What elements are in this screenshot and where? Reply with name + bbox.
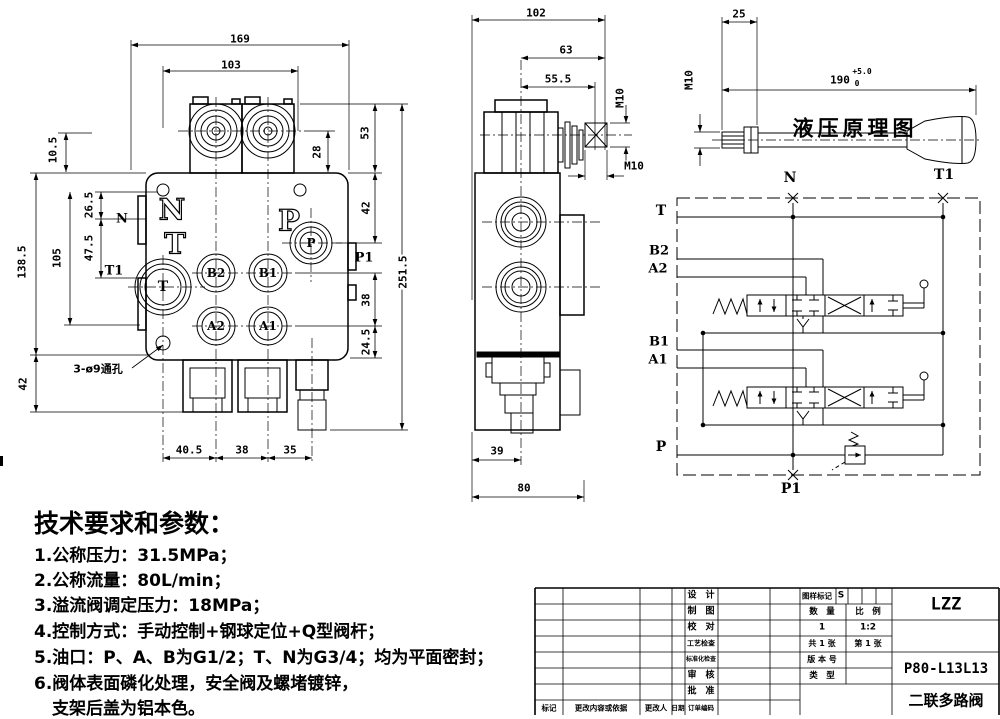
tb-qty-label: 数 量 (809, 608, 835, 617)
tb-mark-col-label: 标记 (542, 704, 557, 712)
dim-251-5: 251.5 (398, 254, 409, 289)
dim-m10-end: M10 (623, 161, 645, 172)
cast-letter-n: N (158, 196, 187, 225)
tb-check-label: 校 对 (687, 624, 714, 633)
dim-63: 63 (558, 45, 573, 56)
tb-company: LZZ (931, 597, 962, 614)
dim-35: 35 (282, 445, 297, 456)
dim-26-5: 26.5 (84, 191, 95, 220)
dim-102: 102 (525, 8, 547, 19)
tb-model: P80-L13L13 (904, 662, 988, 676)
dim-39: 39 (489, 446, 504, 457)
dim-m10-shaft: M10 (615, 87, 626, 109)
tb-change-col-label: 更改内容或依据 (575, 704, 628, 712)
tech-note-3: 3.溢流阀调定压力：18MPa； (34, 591, 269, 616)
side-view-extensions (472, 15, 630, 502)
hole-note: 3-ø9通孔 (73, 364, 122, 375)
schematic-border (677, 198, 980, 475)
tb-sheets-total: 共 1 张 (808, 640, 835, 648)
side-view-centerlines (480, 60, 632, 465)
dim-103: 103 (220, 60, 242, 71)
tb-qty-value: 1 (819, 624, 825, 633)
dim-42-right: 42 (361, 200, 372, 215)
port-b2: B2 (207, 267, 226, 279)
engineering-drawing-sheet: 169 103 10.5 26.5 47.5 105 138.5 42 53 2… (0, 0, 1000, 715)
dim-53: 53 (360, 125, 371, 140)
dim-105: 105 (52, 247, 63, 269)
sch-port-t1: T1 (934, 168, 954, 182)
valve-symbol-1 (713, 280, 928, 333)
tb-process-label: 工艺检查 (687, 641, 715, 648)
tolerance-lower: 0 (855, 80, 860, 88)
side-view-dimensions (472, 20, 626, 497)
tech-note-5: 5.油口：P、A、B为G1/2；T、N为G3/4；均为平面密封； (34, 643, 493, 668)
tech-notes-title: 技术要求和参数： (34, 504, 234, 540)
cast-letter-p: P (277, 207, 301, 236)
tech-note-2: 2.公称流量：80L/min； (34, 566, 231, 591)
tb-scale-value: 1:2 (860, 624, 876, 633)
tb-product-name: 二联多路阀 (908, 694, 983, 709)
tb-order-label: 订单编码 (688, 705, 714, 712)
tb-approve-label: 批 准 (687, 688, 714, 697)
schematic-title: 液压原理图 (793, 119, 918, 140)
tb-drawing-mark-label: 图样标记 (802, 592, 832, 600)
port-label-t1-ext: T1 (105, 265, 124, 278)
port-a1: A1 (259, 320, 277, 332)
dim-47-5: 47.5 (84, 234, 95, 263)
dim-42-left: 42 (18, 376, 29, 391)
dim-80: 80 (516, 483, 531, 494)
dim-40-5: 40.5 (175, 445, 204, 456)
relief-valve-symbol (832, 432, 865, 470)
dim-55-5: 55.5 (544, 74, 573, 85)
cast-letter-t: T (163, 230, 187, 259)
tech-note-6: 6.阀体表面磷化处理，安全阀及螺堵镀锌， (34, 669, 358, 694)
dim-138-5: 138.5 (17, 244, 28, 279)
tech-note-4: 4.控制方式：手动控制+钢球定位+Q型阀杆； (34, 617, 384, 642)
valve-symbol-2 (713, 372, 928, 425)
port-label-p1-ext: P1 (355, 252, 374, 265)
edge-artifact (0, 456, 3, 466)
port-a2: A2 (207, 320, 225, 332)
port-p: P (306, 237, 315, 249)
sch-port-p: P (656, 440, 667, 454)
schematic-lines (677, 193, 948, 480)
dim-28: 28 (312, 144, 323, 159)
sch-port-b1: B1 (649, 336, 669, 349)
tb-standard-label: 标准化检查 (686, 657, 716, 663)
side-view-details (477, 112, 607, 433)
tb-changer-col-label: 更改人 (645, 704, 668, 712)
sch-port-n: N (784, 171, 797, 185)
tb-version-label: 版 本 号 (807, 656, 837, 664)
tb-type-label: 类 型 (809, 672, 835, 681)
sch-port-t: T (656, 204, 666, 218)
tech-note-7: 支架后盖为铝本色。 (52, 694, 205, 719)
sch-port-a2: A2 (648, 263, 667, 276)
port-b1: B1 (259, 267, 278, 279)
dim-190: 190 (829, 75, 851, 86)
tb-drawing-mark-value: S (838, 592, 844, 601)
sch-port-b2: B2 (649, 245, 669, 258)
dim-10-5: 10.5 (48, 136, 59, 165)
dim-38-right: 38 (361, 292, 372, 307)
tb-scale-label: 比 例 (855, 608, 881, 617)
tb-review-label: 审 核 (687, 672, 714, 681)
tb-date-col-label: 日期 (672, 705, 685, 712)
port-label-n-ext: N (116, 213, 128, 226)
tb-design-label: 设 计 (687, 592, 714, 601)
tolerance-upper: +5.0 (852, 68, 871, 76)
dim-24-5: 24.5 (361, 328, 372, 357)
tb-draft-label: 制 图 (687, 608, 714, 617)
sch-port-p1: P1 (781, 482, 801, 496)
tech-note-1: 1.公称压力：31.5MPa； (34, 541, 237, 566)
front-view-details (135, 104, 332, 430)
dim-38-bottom: 38 (234, 445, 249, 456)
dim-25: 25 (731, 9, 746, 20)
dim-169: 169 (229, 34, 251, 45)
port-t: T (158, 280, 168, 294)
tb-sheet-no: 第 1 张 (854, 640, 881, 648)
sch-port-a1: A1 (648, 354, 667, 367)
dim-m10-handle: M10 (684, 69, 695, 91)
